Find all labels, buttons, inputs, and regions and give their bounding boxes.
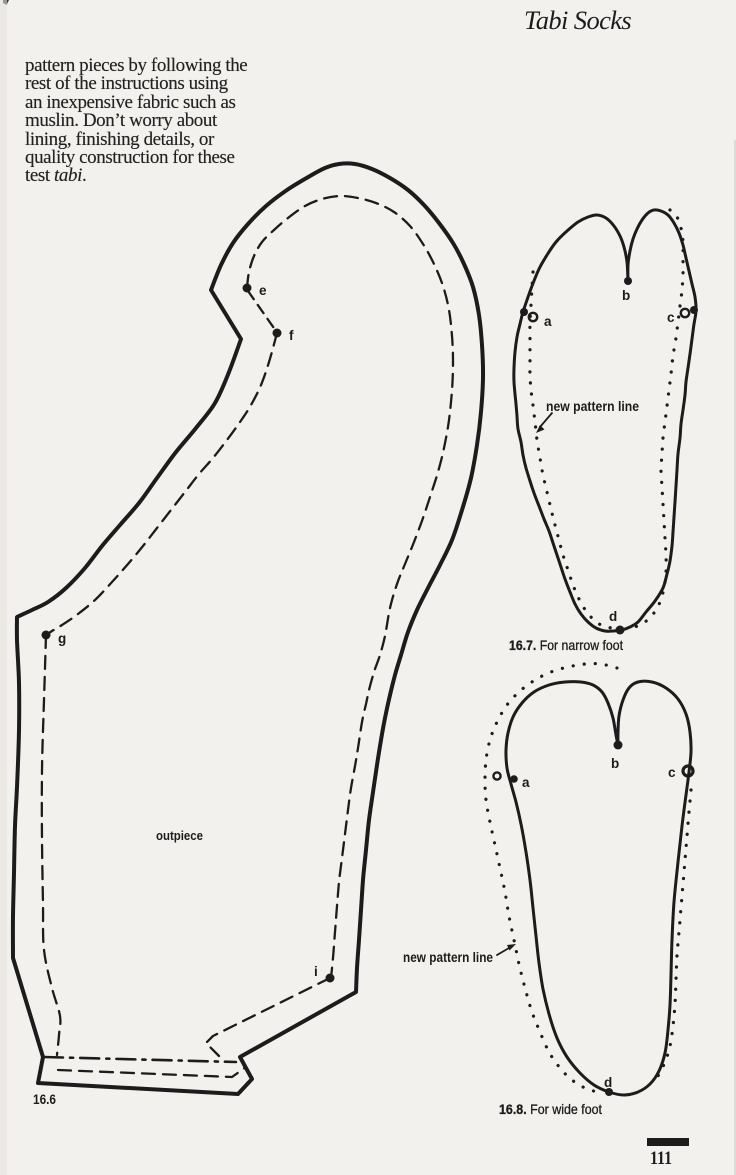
svg-text:g: g bbox=[58, 631, 66, 646]
svg-text:16.7. For narrow foot: 16.7. For narrow foot bbox=[509, 637, 623, 653]
svg-text:d: d bbox=[604, 1075, 612, 1090]
svg-text:new pattern line: new pattern line bbox=[403, 950, 493, 965]
svg-text:f: f bbox=[289, 328, 294, 343]
svg-text:111: 111 bbox=[650, 1148, 672, 1169]
svg-text:i: i bbox=[314, 964, 318, 979]
svg-text:b: b bbox=[622, 288, 630, 303]
svg-text:b: b bbox=[611, 756, 619, 771]
svg-text:new pattern line: new pattern line bbox=[546, 399, 639, 414]
svg-text:a: a bbox=[522, 775, 530, 790]
svg-text:16.8. For wide foot: 16.8. For wide foot bbox=[499, 1101, 602, 1117]
svg-text:c: c bbox=[668, 765, 676, 780]
svg-text:a: a bbox=[544, 314, 552, 329]
svg-text:d: d bbox=[609, 609, 617, 624]
svg-text:e: e bbox=[259, 283, 267, 298]
svg-text:c: c bbox=[667, 310, 675, 325]
svg-text:outpiece: outpiece bbox=[156, 828, 203, 843]
svg-text:16.6: 16.6 bbox=[33, 1091, 56, 1107]
